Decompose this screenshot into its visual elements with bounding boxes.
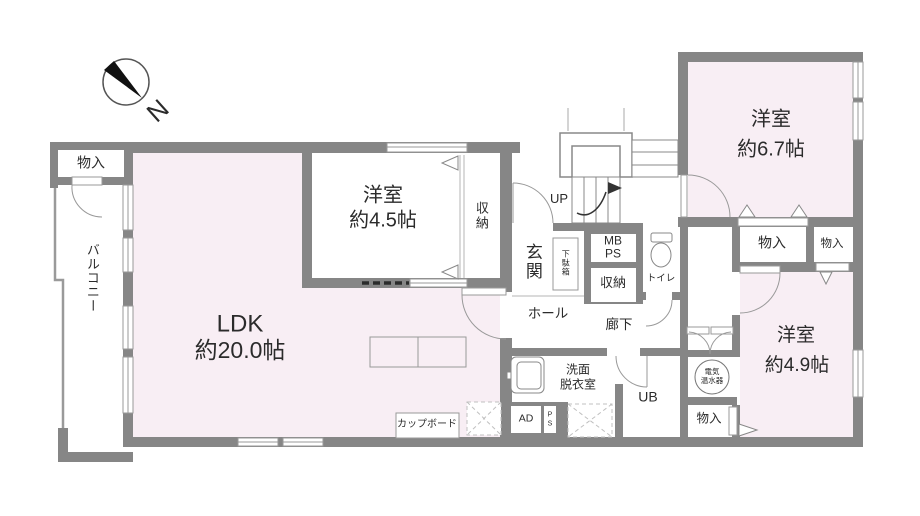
- floor-plan-drawing: [0, 0, 920, 516]
- cupboard-label: カップボード: [397, 420, 457, 431]
- washroom-label-line1: 洗面: [566, 364, 590, 377]
- closet-top-left-label: 物入: [77, 156, 105, 171]
- meter-box-label-line2: PS: [605, 248, 621, 261]
- balcony-label: バルコニー: [85, 243, 99, 313]
- water-heater-label-line1: 電気: [705, 368, 720, 376]
- closet-bottom-right-label: 物入: [696, 412, 721, 425]
- stairs: [560, 108, 678, 223]
- hall-label: ホール: [528, 307, 569, 321]
- shoe-box-label: 下駄箱: [561, 250, 569, 277]
- closet-hall-label: 収納: [600, 276, 626, 290]
- toilet-label: トイレ: [647, 274, 676, 284]
- entrance-label: 玄関: [523, 243, 541, 281]
- toilet-icon: [651, 233, 672, 267]
- meter-box-label-line1: MB: [604, 235, 622, 248]
- balcony-outline: [55, 150, 63, 430]
- room-ldk-area: 約20.0帖: [195, 338, 286, 362]
- water-heater-label-line2: 温水器: [701, 377, 724, 385]
- room-4-9-name: 洋室: [777, 326, 815, 346]
- unit-bath-label: UB: [638, 390, 657, 405]
- pipe-space-label-line2: S: [548, 420, 553, 427]
- room-4-5-area: 約4.5帖: [349, 211, 417, 232]
- floor-plan: N 物入 洋室 約4.5帖 収納 洋室 約6.7帖 UP 玄関 下駄箱 MB P…: [0, 0, 920, 516]
- room-6-7-name: 洋室: [751, 110, 791, 131]
- washroom-label-line2: 脱衣室: [560, 379, 596, 392]
- room-4-9-area: 約4.9帖: [765, 356, 829, 376]
- air-duct-label: AD: [519, 413, 534, 424]
- closet-right-1-label: 物入: [758, 236, 786, 251]
- room-ldk-name: LDK: [217, 311, 264, 336]
- room-6-7-area: 約6.7帖: [737, 140, 805, 161]
- closet-right-2-label: 物入: [821, 238, 844, 250]
- stairs-up-label: UP: [550, 192, 568, 206]
- corridor-label: 廊下: [606, 318, 633, 332]
- room-4-5-name: 洋室: [363, 186, 403, 207]
- compass: [103, 59, 149, 105]
- pipe-space-label-line1: P: [548, 411, 553, 418]
- closet-4-5-label: 収納: [474, 201, 488, 231]
- sink-icon: [507, 357, 544, 393]
